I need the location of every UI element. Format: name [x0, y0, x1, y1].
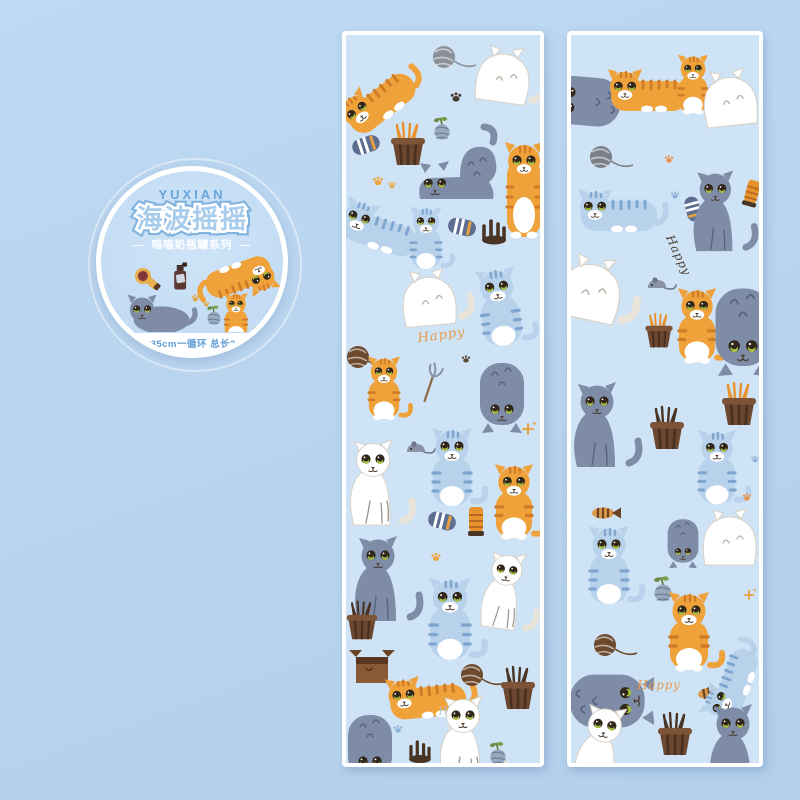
sticker-paw	[394, 725, 402, 732]
sticker-basket-grass	[722, 383, 756, 425]
sticker-sparkle	[523, 422, 535, 434]
sticker-cat-orange-sit	[495, 464, 540, 540]
sticker-cat-white-back	[400, 266, 473, 328]
sticker-cat-white-back	[474, 43, 540, 108]
sticker-paw	[388, 182, 396, 189]
sticker-basket-grass	[645, 314, 672, 348]
sticker-cat-blue-sit	[474, 264, 538, 349]
sticker-cat-gray-sit	[710, 704, 759, 763]
sticker-cat-gray-sit	[355, 536, 420, 621]
sticker-spray	[174, 263, 187, 290]
sticker-cat-gray-hang	[480, 363, 524, 433]
sticker-cat-blue-sit	[589, 526, 642, 604]
tape-strip-left: HappyHappy	[342, 31, 544, 767]
sticker-cat-gray-sit	[574, 382, 639, 467]
sticker-mouse	[407, 441, 435, 453]
sticker-cat-white-back	[701, 65, 759, 128]
product-title-art: 海波摇摇 海波摇摇	[106, 200, 278, 237]
series-subtitle-row: — 喵喵奶瓶罐系列 —	[133, 237, 251, 252]
sticker-paw	[751, 456, 759, 463]
sticker-paw	[665, 155, 673, 162]
sticker-cat-blue-sit	[698, 430, 749, 504]
sticker-cat-gray-hang	[668, 519, 699, 568]
sticker-box	[349, 650, 395, 683]
sticker-yarn	[433, 46, 476, 68]
sticker-sock	[447, 216, 478, 237]
sticker-sprout	[434, 117, 450, 140]
sticker-mouse	[648, 277, 676, 289]
sticker-happy: Happy	[416, 325, 467, 347]
subtitle-dash-right: —	[239, 239, 251, 251]
sticker-cat-blue-sit	[432, 428, 485, 506]
sticker-cat-white-sit	[350, 440, 412, 525]
sticker-tube	[742, 179, 759, 208]
sticker-tube	[468, 507, 484, 536]
sticker-happy: Happy	[636, 678, 680, 692]
badge-illustration	[104, 254, 280, 332]
product-title: 海波摇摇	[136, 204, 248, 234]
sticker-yarn	[594, 634, 637, 656]
series-subtitle: 喵喵奶瓶罐系列	[152, 237, 233, 252]
sticker-sparkle	[745, 589, 756, 599]
sticker-cat-blue-lying	[578, 189, 666, 232]
sticker-crown	[409, 742, 431, 763]
sticker-basket-dark	[501, 667, 535, 709]
sticker-cat-gray-sit	[694, 170, 756, 251]
tape-strip-right-art: HappyHappy	[571, 35, 759, 763]
sticker-cat-white-sit	[479, 550, 540, 634]
sticker-cat-white-back	[571, 250, 645, 329]
sticker-brush	[133, 264, 163, 297]
sticker-crown	[482, 221, 506, 245]
sticker-basket-dark	[658, 713, 692, 755]
product-photo: { "badge": { "brand": "YUXIAN", "title":…	[0, 0, 800, 800]
sticker-cat-blue-sit	[410, 207, 453, 269]
sticker-yarn	[461, 664, 504, 686]
sticker-sock	[350, 133, 382, 157]
sticker-cat-gray-hang	[716, 289, 760, 377]
brand-badge: YUXIAN 海波摇摇 海波摇摇 — 喵喵奶瓶罐系列 — 5x35cm一循环 总…	[96, 166, 288, 358]
sticker-paw	[431, 553, 440, 561]
sticker-cat-blue-sit	[429, 578, 485, 660]
sticker-sprout	[490, 742, 506, 763]
sticker-paw	[451, 92, 462, 101]
tape-strip-right: HappyHappy	[567, 31, 763, 767]
sticker-basket-grass	[391, 123, 425, 165]
sticker-sprout	[207, 306, 220, 325]
sticker-fish	[592, 508, 621, 519]
sticker-wand	[414, 361, 451, 401]
sticker-cat-orange-sit	[224, 293, 256, 332]
subtitle-dash-left: —	[133, 239, 145, 251]
sticker-cat-gray-lying	[128, 295, 195, 332]
sticker-cat-white-back	[703, 509, 759, 565]
sticker-basket-dark	[650, 407, 684, 449]
sticker-cat-orange-stand	[505, 142, 540, 239]
sticker-happy: Happy	[663, 232, 694, 278]
sticker-sock	[426, 510, 457, 532]
sticker-paw	[373, 177, 383, 186]
sticker-cat-gray-hang	[348, 715, 392, 763]
sticker-paw	[462, 355, 470, 362]
sticker-paw	[671, 191, 679, 198]
sticker-cat-orange-sit	[368, 357, 411, 421]
tape-strip-left-art: HappyHappy	[346, 35, 540, 763]
sticker-yarn	[590, 146, 633, 168]
sticker-sprout	[654, 576, 672, 601]
sticker-cat-orange-sit	[669, 592, 722, 672]
sticker-cat-gray-stretch	[419, 127, 496, 199]
